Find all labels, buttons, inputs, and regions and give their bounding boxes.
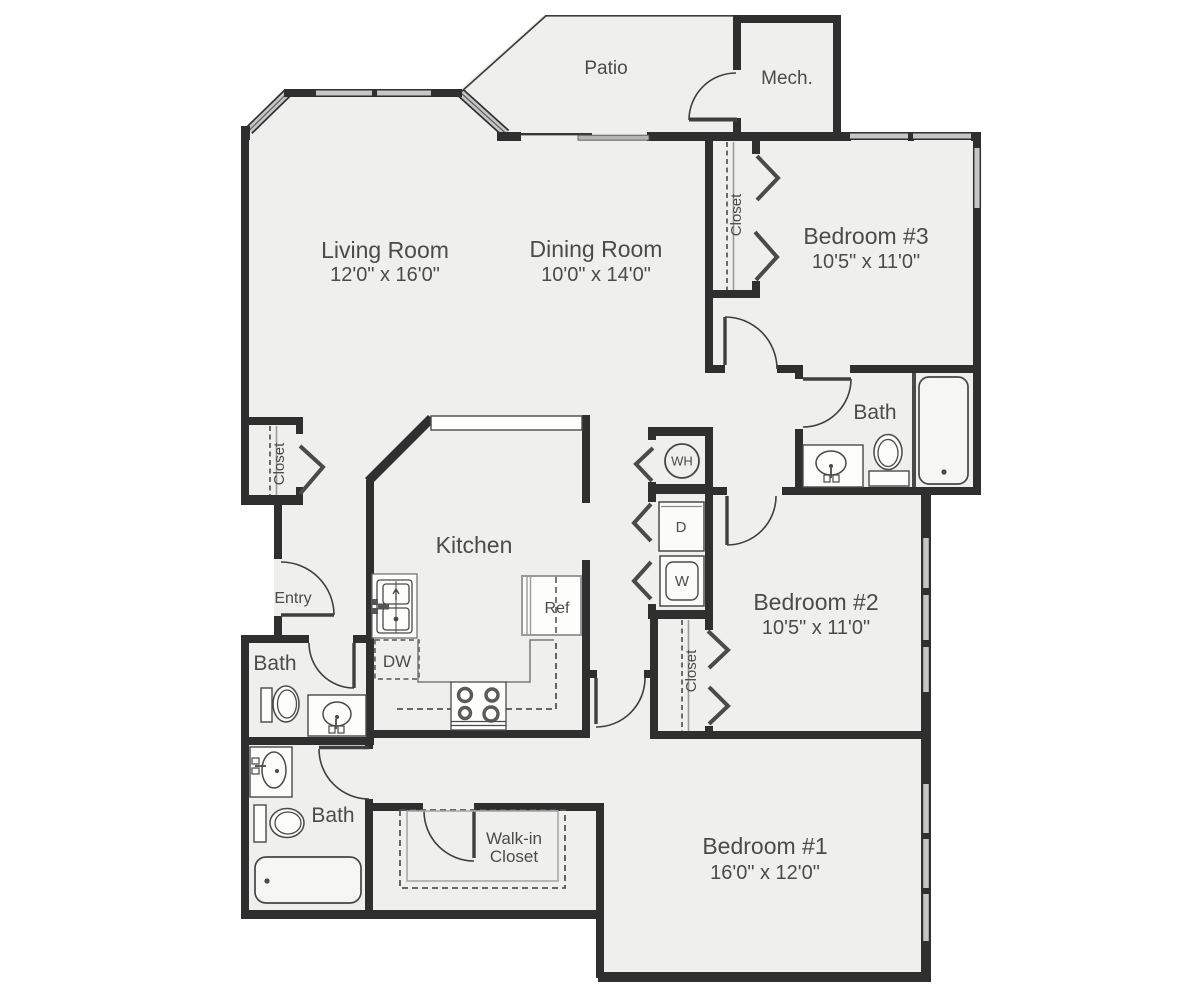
svg-text:Entry: Entry — [274, 590, 311, 607]
svg-text:WH: WH — [671, 454, 693, 469]
svg-text:Patio: Patio — [584, 58, 627, 79]
svg-text:DW: DW — [383, 652, 411, 671]
svg-text:Kitchen: Kitchen — [436, 532, 513, 558]
svg-text:Bath: Bath — [311, 804, 354, 827]
svg-text:Bedroom #2: Bedroom #2 — [753, 589, 878, 615]
svg-text:D: D — [676, 519, 687, 536]
svg-text:Bedroom #3: Bedroom #3 — [803, 223, 928, 249]
svg-text:Mech.: Mech. — [761, 68, 813, 89]
svg-text:Bath: Bath — [253, 652, 296, 675]
svg-text:10'5" x 11'0": 10'5" x 11'0" — [762, 617, 870, 639]
svg-text:10'5" x 11'0": 10'5" x 11'0" — [812, 251, 920, 273]
svg-text:10'0" x 14'0": 10'0" x 14'0" — [541, 264, 651, 286]
svg-text:Living Room: Living Room — [321, 237, 449, 263]
svg-text:Ref: Ref — [545, 600, 570, 617]
svg-text:Bath: Bath — [853, 401, 896, 424]
svg-text:Closet: Closet — [490, 847, 538, 866]
svg-text:Bedroom #1: Bedroom #1 — [702, 833, 827, 859]
svg-text:Closet: Closet — [728, 193, 745, 236]
svg-text:W: W — [675, 573, 690, 590]
svg-text:Closet: Closet — [271, 442, 288, 485]
svg-text:Walk-in: Walk-in — [486, 829, 542, 848]
svg-text:16'0" x 12'0": 16'0" x 12'0" — [710, 862, 820, 884]
svg-text:12'0" x 16'0": 12'0" x 16'0" — [330, 264, 440, 286]
svg-text:Dining Room: Dining Room — [530, 236, 663, 262]
svg-text:Closet: Closet — [683, 649, 700, 692]
